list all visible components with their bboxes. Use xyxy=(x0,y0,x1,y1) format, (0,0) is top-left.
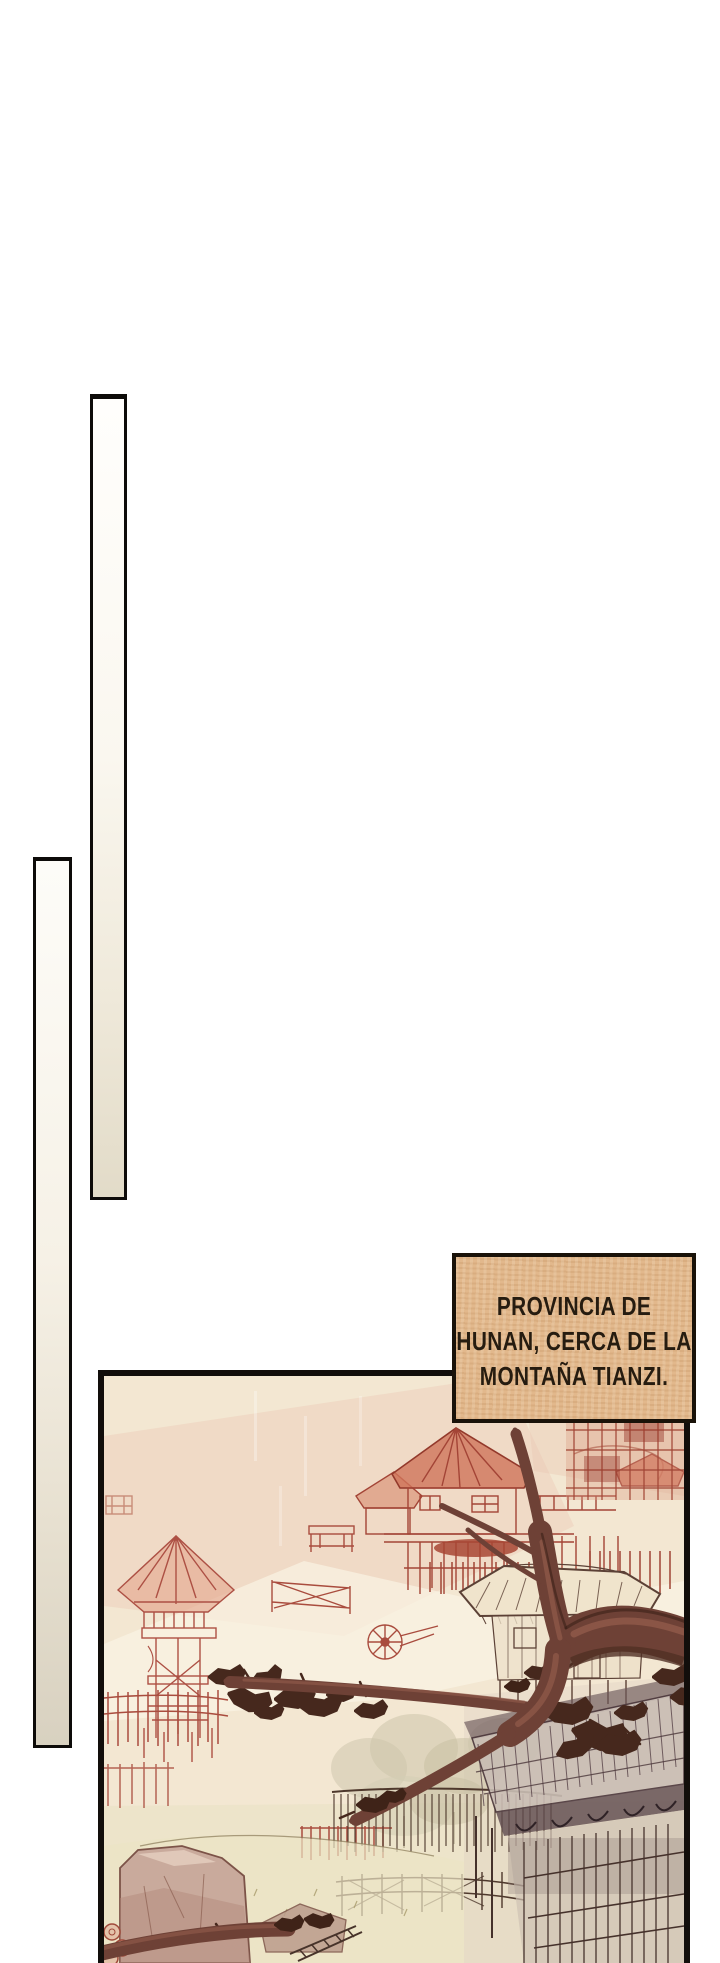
narration-line-3: MONTAÑA TIANZI. xyxy=(456,1359,691,1394)
village-illustration xyxy=(104,1376,684,1963)
narration-caption: PROVINCIA DE HUNAN, CERCA DE LA MONTAÑA … xyxy=(452,1253,696,1423)
narration-line-1: PROVINCIA DE xyxy=(456,1289,691,1324)
narration-text: PROVINCIA DE HUNAN, CERCA DE LA MONTAÑA … xyxy=(456,1283,691,1394)
transition-bar-right xyxy=(90,394,127,1200)
narration-line-2: HUNAN, CERCA DE LA xyxy=(456,1324,691,1359)
scene-panel xyxy=(98,1370,690,1963)
transition-bar-left xyxy=(33,857,72,1748)
